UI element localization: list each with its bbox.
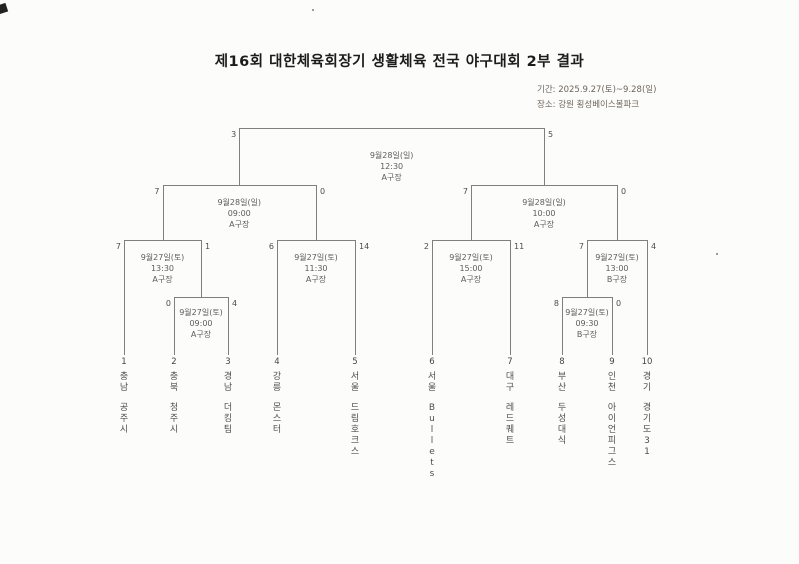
bracket-line [163, 185, 164, 240]
team-10-number: 10 [642, 357, 653, 367]
team-3-region: 경 남 [224, 372, 232, 394]
game-r1_left-info: 9월27일(토)09:00A구장 [159, 307, 243, 340]
score-qf_left_inner-left: 6 [260, 242, 274, 251]
team-2-name: 청 주 시 [170, 403, 178, 436]
game-qf_left_inner-venue: A구장 [274, 274, 358, 285]
team-9-name: 아 이 언 피 그 스 [608, 403, 616, 469]
event-info: 기간: 2025.9.27(토)~9.28(일) 장소: 강원 횡성베이스볼파크 [537, 83, 656, 113]
scan-speck [716, 253, 718, 255]
game-qf_left_inner-info: 9월27일(토)11:30A구장 [274, 252, 358, 285]
score-qf_left_outer-right: 1 [205, 242, 210, 251]
bracket-line [544, 128, 545, 185]
score-qf_right_outer-right: 4 [651, 242, 656, 251]
game-qf_right_inner-info: 9월27일(토)15:00A구장 [429, 252, 513, 285]
team-4-name: 몬 스 터 [273, 403, 281, 436]
score-qf_left_inner-right: 14 [359, 242, 369, 251]
game-r1_right-venue: B구장 [545, 329, 629, 340]
score-final-right: 5 [548, 130, 553, 139]
game-final-time: 12:30 [350, 161, 434, 172]
score-qf_right_inner-left: 2 [415, 242, 429, 251]
game-qf_left_outer-date: 9월27일(토) [121, 252, 205, 263]
page-title: 제16회 대한체육회장기 생활체육 전국 야구대회 2부 결과 [0, 50, 799, 71]
team-6-name: B u l l e t s [429, 403, 435, 480]
game-qf_right_inner-date: 9월27일(토) [429, 252, 513, 263]
game-sf_right-date: 9월28일(일) [502, 197, 586, 208]
game-qf_left_outer-venue: A구장 [121, 274, 205, 285]
game-qf_left_inner-time: 11:30 [274, 263, 358, 274]
game-final-venue: A구장 [350, 172, 434, 183]
game-qf_left_outer-time: 13:30 [121, 263, 205, 274]
team-5-name: 드 림 호 크 스 [351, 403, 359, 458]
team-1-name: 공 주 시 [120, 403, 128, 436]
team-3-number: 3 [225, 357, 230, 367]
team-4-region: 강 릉 [273, 372, 281, 394]
score-qf_right_outer-left: 7 [570, 242, 584, 251]
team-1-number: 1 [121, 357, 126, 367]
game-final-info: 9월28일(일)12:30A구장 [350, 150, 434, 183]
game-qf_right_inner-venue: A구장 [429, 274, 513, 285]
bracket-line [239, 128, 240, 185]
scan-speck [312, 9, 314, 11]
score-final-left: 3 [222, 130, 236, 139]
team-9-number: 9 [609, 357, 614, 367]
team-7-region: 대 구 [506, 372, 514, 394]
game-r1_right-info: 9월27일(토)09:30B구장 [545, 307, 629, 340]
score-sf_left-right: 0 [320, 187, 325, 196]
round1-right-connector [562, 297, 612, 298]
game-qf_right_outer-venue: B구장 [575, 274, 659, 285]
game-r1_left-time: 09:00 [159, 318, 243, 329]
bracket-line [316, 185, 317, 240]
team-8-number: 8 [559, 357, 564, 367]
scan-artifact [0, 3, 8, 14]
score-qf_left_outer-left: 7 [107, 242, 121, 251]
team-10-region: 경 기 [643, 372, 651, 394]
round1-left-connector [174, 297, 228, 298]
game-r1_left-date: 9월27일(토) [159, 307, 243, 318]
semifinal-right-connector [471, 185, 617, 186]
game-r1_right-time: 09:30 [545, 318, 629, 329]
game-sf_left-info: 9월28일(일)09:00A구장 [197, 197, 281, 230]
team-5-number: 5 [352, 357, 357, 367]
qf-left-inner-connector [277, 240, 355, 241]
bracket-line [471, 185, 472, 240]
game-qf_right_outer-date: 9월27일(토) [575, 252, 659, 263]
game-qf_right_outer-info: 9월27일(토)13:00B구장 [575, 252, 659, 285]
qf-right-inner-connector [432, 240, 510, 241]
team-8-region: 부 산 [558, 372, 566, 394]
game-sf_left-date: 9월28일(일) [197, 197, 281, 208]
bracket-line [617, 185, 618, 240]
game-qf_right_outer-time: 13:00 [575, 263, 659, 274]
scanned-result-sheet: 제16회 대한체육회장기 생활체육 전국 야구대회 2부 결과 기간: 2025… [0, 0, 799, 564]
team-6-region: 서 울 [428, 372, 436, 394]
game-r1_left-venue: A구장 [159, 329, 243, 340]
team-10-name: 경 기 도 3 1 [643, 403, 651, 458]
game-sf_right-venue: A구장 [502, 219, 586, 230]
score-sf_left-left: 7 [146, 187, 160, 196]
game-sf_right-info: 9월28일(일)10:00A구장 [502, 197, 586, 230]
team-8-name: 두 성 대 식 [558, 403, 566, 447]
game-final-date: 9월28일(일) [350, 150, 434, 161]
final-connector [239, 128, 544, 129]
semifinal-left-connector [163, 185, 317, 186]
score-r1_left-left: 0 [157, 299, 171, 308]
qf-right-outer-connector [587, 240, 647, 241]
team-1-region: 충 남 [120, 372, 128, 394]
team-3-name: 더 킹 팀 [224, 403, 232, 436]
team-7-name: 레 드 퀘 트 [506, 403, 514, 447]
score-r1_left-right: 4 [232, 299, 237, 308]
score-r1_right-left: 8 [545, 299, 559, 308]
team-7-number: 7 [507, 357, 512, 367]
team-9-region: 인 천 [608, 372, 616, 394]
team-5-region: 서 울 [351, 372, 359, 394]
qf-left-outer-connector [124, 240, 201, 241]
game-qf_left_outer-info: 9월27일(토)13:30A구장 [121, 252, 205, 285]
game-r1_right-date: 9월27일(토) [545, 307, 629, 318]
team-6-number: 6 [429, 357, 434, 367]
game-sf_left-venue: A구장 [197, 219, 281, 230]
team-2-region: 충 북 [170, 372, 178, 394]
score-qf_right_inner-right: 11 [514, 242, 524, 251]
event-location: 장소: 강원 횡성베이스볼파크 [537, 98, 656, 113]
game-sf_right-time: 10:00 [502, 208, 586, 219]
game-qf_left_inner-date: 9월27일(토) [274, 252, 358, 263]
score-sf_right-right: 0 [621, 187, 626, 196]
event-period: 기간: 2025.9.27(토)~9.28(일) [537, 83, 656, 98]
team-4-number: 4 [274, 357, 279, 367]
score-sf_right-left: 7 [454, 187, 468, 196]
game-sf_left-time: 09:00 [197, 208, 281, 219]
score-r1_right-right: 0 [616, 299, 621, 308]
game-qf_right_inner-time: 15:00 [429, 263, 513, 274]
team-2-number: 2 [171, 357, 176, 367]
